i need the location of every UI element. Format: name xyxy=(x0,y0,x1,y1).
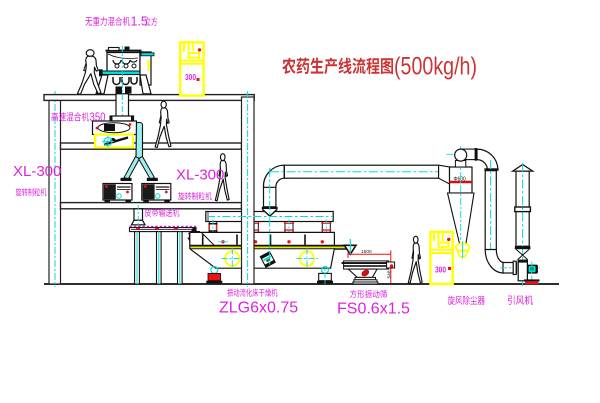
svg-text:1.5: 1.5 xyxy=(131,15,148,29)
svg-text:300: 300 xyxy=(435,265,446,275)
svg-text:XL-300: XL-300 xyxy=(176,167,224,184)
svg-text:548: 548 xyxy=(387,270,393,278)
svg-text:Φ600: Φ600 xyxy=(454,177,467,183)
svg-text:300: 300 xyxy=(185,72,196,82)
svg-text:ZLG6x0.75: ZLG6x0.75 xyxy=(219,300,298,317)
svg-text:1500: 1500 xyxy=(361,249,372,255)
svg-text:(500kg/h): (500kg/h) xyxy=(394,53,477,81)
svg-text:350: 350 xyxy=(90,112,106,124)
svg-text:FS0.6x1.5: FS0.6x1.5 xyxy=(337,301,410,318)
svg-text:XL-300: XL-300 xyxy=(13,163,61,180)
